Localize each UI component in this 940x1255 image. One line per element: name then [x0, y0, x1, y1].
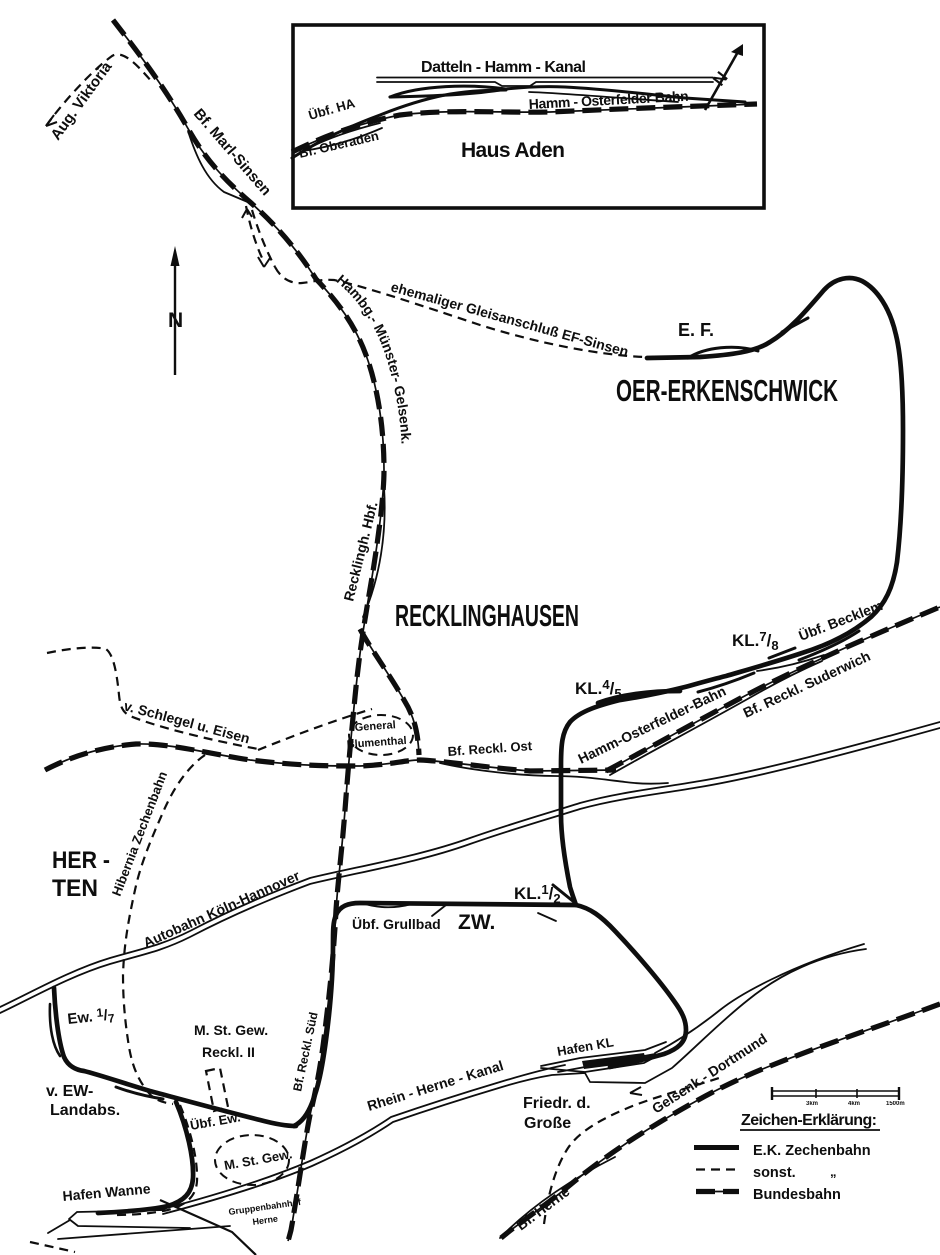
svg-text:Haus Aden: Haus Aden — [461, 139, 565, 162]
svg-text:ZW.: ZW. — [458, 911, 495, 934]
svg-text:„: „ — [830, 1164, 837, 1179]
svg-text:Große: Große — [524, 1115, 571, 1132]
svg-text:HER -: HER - — [52, 847, 110, 874]
svg-text:Übf. Grullbad: Übf. Grullbad — [352, 916, 441, 932]
svg-text:sonst.: sonst. — [753, 1165, 796, 1181]
svg-text:N: N — [168, 309, 183, 332]
svg-text:Zeichen-Erklärung:: Zeichen-Erklärung: — [741, 1112, 877, 1129]
svg-text:E.K. Zechenbahn: E.K. Zechenbahn — [753, 1143, 871, 1159]
svg-text:Bundesbahn: Bundesbahn — [753, 1187, 841, 1203]
svg-text:1500m: 1500m — [886, 1101, 905, 1107]
svg-text:TEN: TEN — [52, 875, 98, 902]
svg-text:Datteln - Hamm - Kanal: Datteln - Hamm - Kanal — [421, 59, 586, 76]
svg-text:RECKLINGHAUSEN: RECKLINGHAUSEN — [395, 598, 579, 633]
svg-text:M. St. Gew.: M. St. Gew. — [194, 1022, 268, 1038]
svg-text:Landabs.: Landabs. — [50, 1102, 120, 1119]
svg-text:E. F.: E. F. — [678, 320, 714, 340]
svg-text:v. EW-: v. EW- — [46, 1083, 93, 1100]
svg-text:Friedr. d.: Friedr. d. — [523, 1095, 591, 1112]
svg-text:OER-ERKENSCHWICK: OER-ERKENSCHWICK — [616, 373, 838, 408]
svg-text:3km: 3km — [806, 1101, 818, 1107]
svg-text:4km: 4km — [848, 1101, 860, 1107]
svg-text:Reckl. II: Reckl. II — [202, 1044, 255, 1060]
